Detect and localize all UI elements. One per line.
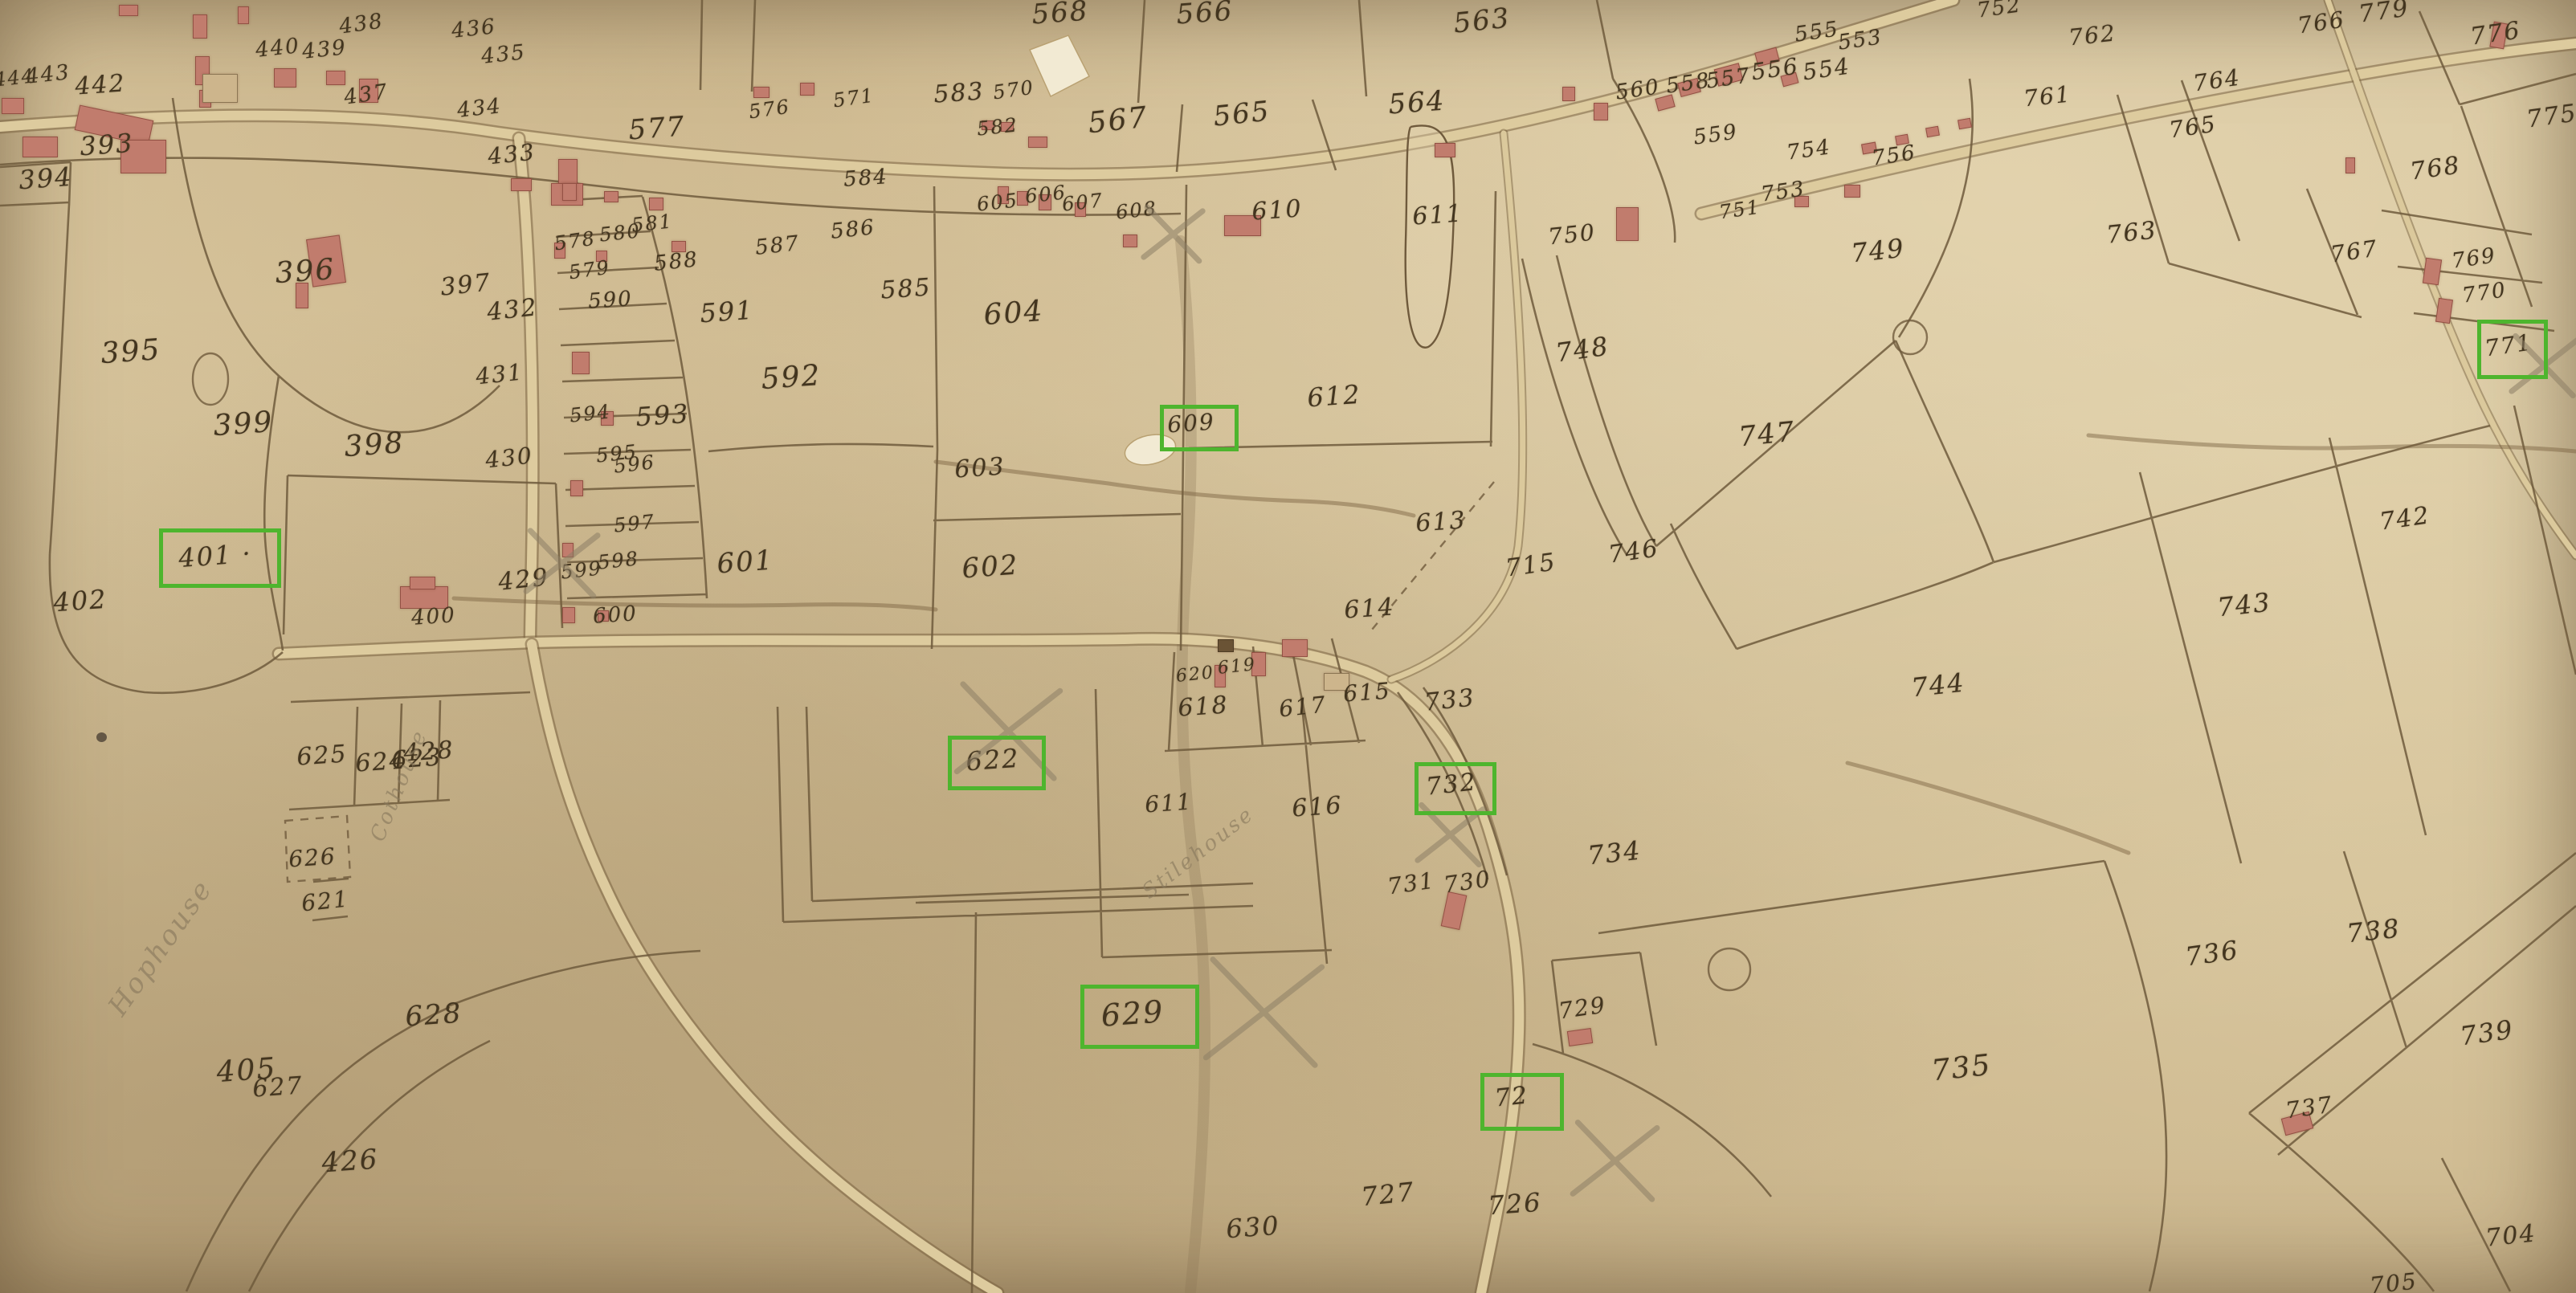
building xyxy=(410,577,435,589)
parcel-label: 593 xyxy=(635,398,691,433)
parcel-label: 405 xyxy=(215,1052,277,1089)
building xyxy=(22,137,58,157)
parcel-label: 611 xyxy=(1144,788,1194,818)
parcel-label: 597 xyxy=(613,510,656,536)
parcel-label: 577 xyxy=(627,111,687,147)
parcel-label: 588 xyxy=(653,247,700,276)
building xyxy=(753,87,770,98)
parcel-label: 704 xyxy=(2484,1219,2538,1252)
parcel-label: 628 xyxy=(404,997,463,1034)
building xyxy=(570,480,583,496)
parcel-label: 399 xyxy=(212,406,274,443)
building xyxy=(800,83,814,96)
parcel-label: 611 xyxy=(1411,199,1464,230)
parcel-label: 567 xyxy=(1087,101,1150,141)
parcel-label: 430 xyxy=(484,442,535,473)
parcel-label: 618 xyxy=(1177,691,1230,722)
parcel-label: 433 xyxy=(487,138,537,169)
annotation-box-609[interactable] xyxy=(1160,405,1239,451)
building xyxy=(1616,207,1639,241)
building xyxy=(572,352,590,374)
parcel-label: 705 xyxy=(2369,1267,2419,1293)
building xyxy=(604,191,618,202)
building xyxy=(1282,639,1308,657)
parcel-label: 601 xyxy=(716,545,775,581)
annotation-box-72[interactable] xyxy=(1480,1073,1564,1131)
parcel-label: 566 xyxy=(1175,0,1235,31)
pencil-x-mark xyxy=(508,506,617,615)
parcel-label: 586 xyxy=(830,215,876,244)
pond xyxy=(1893,320,1927,354)
parcel-label: 443 xyxy=(25,60,71,89)
parcel-label: 617 xyxy=(1278,691,1329,722)
parcel-label: 440 xyxy=(255,34,301,63)
parcel-label: 749 xyxy=(1850,233,1907,269)
parcel-label: 626 xyxy=(288,842,337,872)
parcel-label: 603 xyxy=(953,452,1006,483)
torn-patch xyxy=(1030,35,1089,96)
parcel-label: 726 xyxy=(1487,1187,1543,1222)
building xyxy=(562,183,577,201)
parcel-label: 630 xyxy=(1225,1210,1281,1245)
parcel-label: 393 xyxy=(79,128,135,162)
parcel-label: 620 xyxy=(1175,663,1215,687)
parcel-label: 743 xyxy=(2216,587,2273,623)
parcel-label: 744 xyxy=(1910,667,1967,704)
parcel-label: 580 xyxy=(598,219,642,246)
parcel-label: 607 xyxy=(1061,189,1104,215)
building xyxy=(326,71,345,85)
parcel-label: 587 xyxy=(754,231,801,260)
parcel-label: 616 xyxy=(1291,791,1344,822)
parcel-label: 439 xyxy=(301,35,348,64)
annotation-box-732[interactable] xyxy=(1415,762,1496,815)
parcel-label: 397 xyxy=(439,268,493,301)
parcel-label: 727 xyxy=(1360,1177,1417,1213)
parcel-label: 434 xyxy=(456,94,503,123)
parcel-label: 442 xyxy=(74,69,127,100)
parcel-label: 395 xyxy=(100,333,161,370)
pencil-x-mark xyxy=(1552,1095,1679,1222)
annotation-box-629[interactable] xyxy=(1080,985,1199,1049)
parcel-label: 738 xyxy=(2345,913,2402,949)
parcel-label: 396 xyxy=(274,253,336,290)
parcel-label: 604 xyxy=(982,295,1044,332)
pond xyxy=(193,353,228,405)
building xyxy=(2345,157,2355,173)
parcel-label: 398 xyxy=(343,426,405,463)
parcel-label: 565 xyxy=(1212,95,1272,133)
building xyxy=(1028,137,1047,148)
parcel-label: 614 xyxy=(1343,593,1396,624)
parcel-label: 733 xyxy=(1423,683,1477,716)
building xyxy=(2,98,24,114)
parcel-label: 400 xyxy=(410,603,457,630)
parcel-label: 435 xyxy=(480,40,527,69)
building xyxy=(649,198,663,210)
parcel-label: 592 xyxy=(760,359,822,396)
map-photo: 4444434423933944404394384374364354344335… xyxy=(0,0,2576,1293)
parcel-label: 563 xyxy=(1452,2,1513,39)
ink-blot xyxy=(96,732,107,742)
parcel-label: 612 xyxy=(1306,379,1362,414)
parcel-label: 591 xyxy=(699,295,755,329)
parcel-label: 615 xyxy=(1342,677,1392,707)
parcel-label: 610 xyxy=(1251,194,1304,226)
parcel-label: 431 xyxy=(475,358,525,390)
parcel-label: 590 xyxy=(587,287,634,314)
building xyxy=(511,178,532,191)
parcel-label: 568 xyxy=(1031,0,1090,31)
building xyxy=(1594,103,1608,120)
parcel-label: 585 xyxy=(880,273,933,304)
parcel-label: 594 xyxy=(569,400,612,426)
building xyxy=(274,68,296,88)
parcel-label: 582 xyxy=(976,113,1019,140)
parcel-label: 763 xyxy=(2105,216,2159,249)
annotation-box-401[interactable] xyxy=(159,528,281,588)
parcel-label: 402 xyxy=(52,584,108,618)
building xyxy=(1562,87,1575,101)
pond-enclosure xyxy=(1406,125,1454,347)
parcel-label: 621 xyxy=(300,885,351,916)
parcel-label: 583 xyxy=(933,77,986,108)
building xyxy=(1435,143,1455,157)
parcel-label: 747 xyxy=(1737,415,1798,453)
parcel-label: 564 xyxy=(1387,85,1447,121)
parcel-label: 619 xyxy=(1217,655,1257,679)
parcel-label: 426 xyxy=(320,1144,380,1180)
building xyxy=(193,14,207,39)
pond xyxy=(1708,948,1750,990)
building xyxy=(1844,185,1860,198)
building xyxy=(1218,639,1234,652)
parcel-label: 436 xyxy=(451,14,497,43)
parcel-label: 762 xyxy=(2068,19,2118,51)
building xyxy=(119,5,138,16)
parcel-label: 613 xyxy=(1415,506,1468,537)
pencil-x-mark xyxy=(1178,924,1351,1096)
parcel-label: 584 xyxy=(843,165,889,192)
annotation-box-771[interactable] xyxy=(2477,320,2548,379)
pencil-x-mark xyxy=(1129,186,1219,277)
parcel-label: 761 xyxy=(2023,80,2073,112)
annotation-box-622[interactable] xyxy=(948,736,1046,790)
parcel-label: 394 xyxy=(18,161,74,196)
parcel-label: 734 xyxy=(1586,835,1643,871)
parcel-label: 750 xyxy=(1547,218,1598,250)
parcel-label: 602 xyxy=(961,549,1020,585)
parcel-label: 625 xyxy=(296,740,349,771)
parcel-label: 596 xyxy=(613,451,656,477)
parcel-label: 735 xyxy=(1930,1049,1994,1088)
building xyxy=(202,74,238,103)
parcel-label: 605 xyxy=(976,189,1019,215)
parcel-label: 432 xyxy=(486,293,540,326)
building xyxy=(238,6,249,24)
